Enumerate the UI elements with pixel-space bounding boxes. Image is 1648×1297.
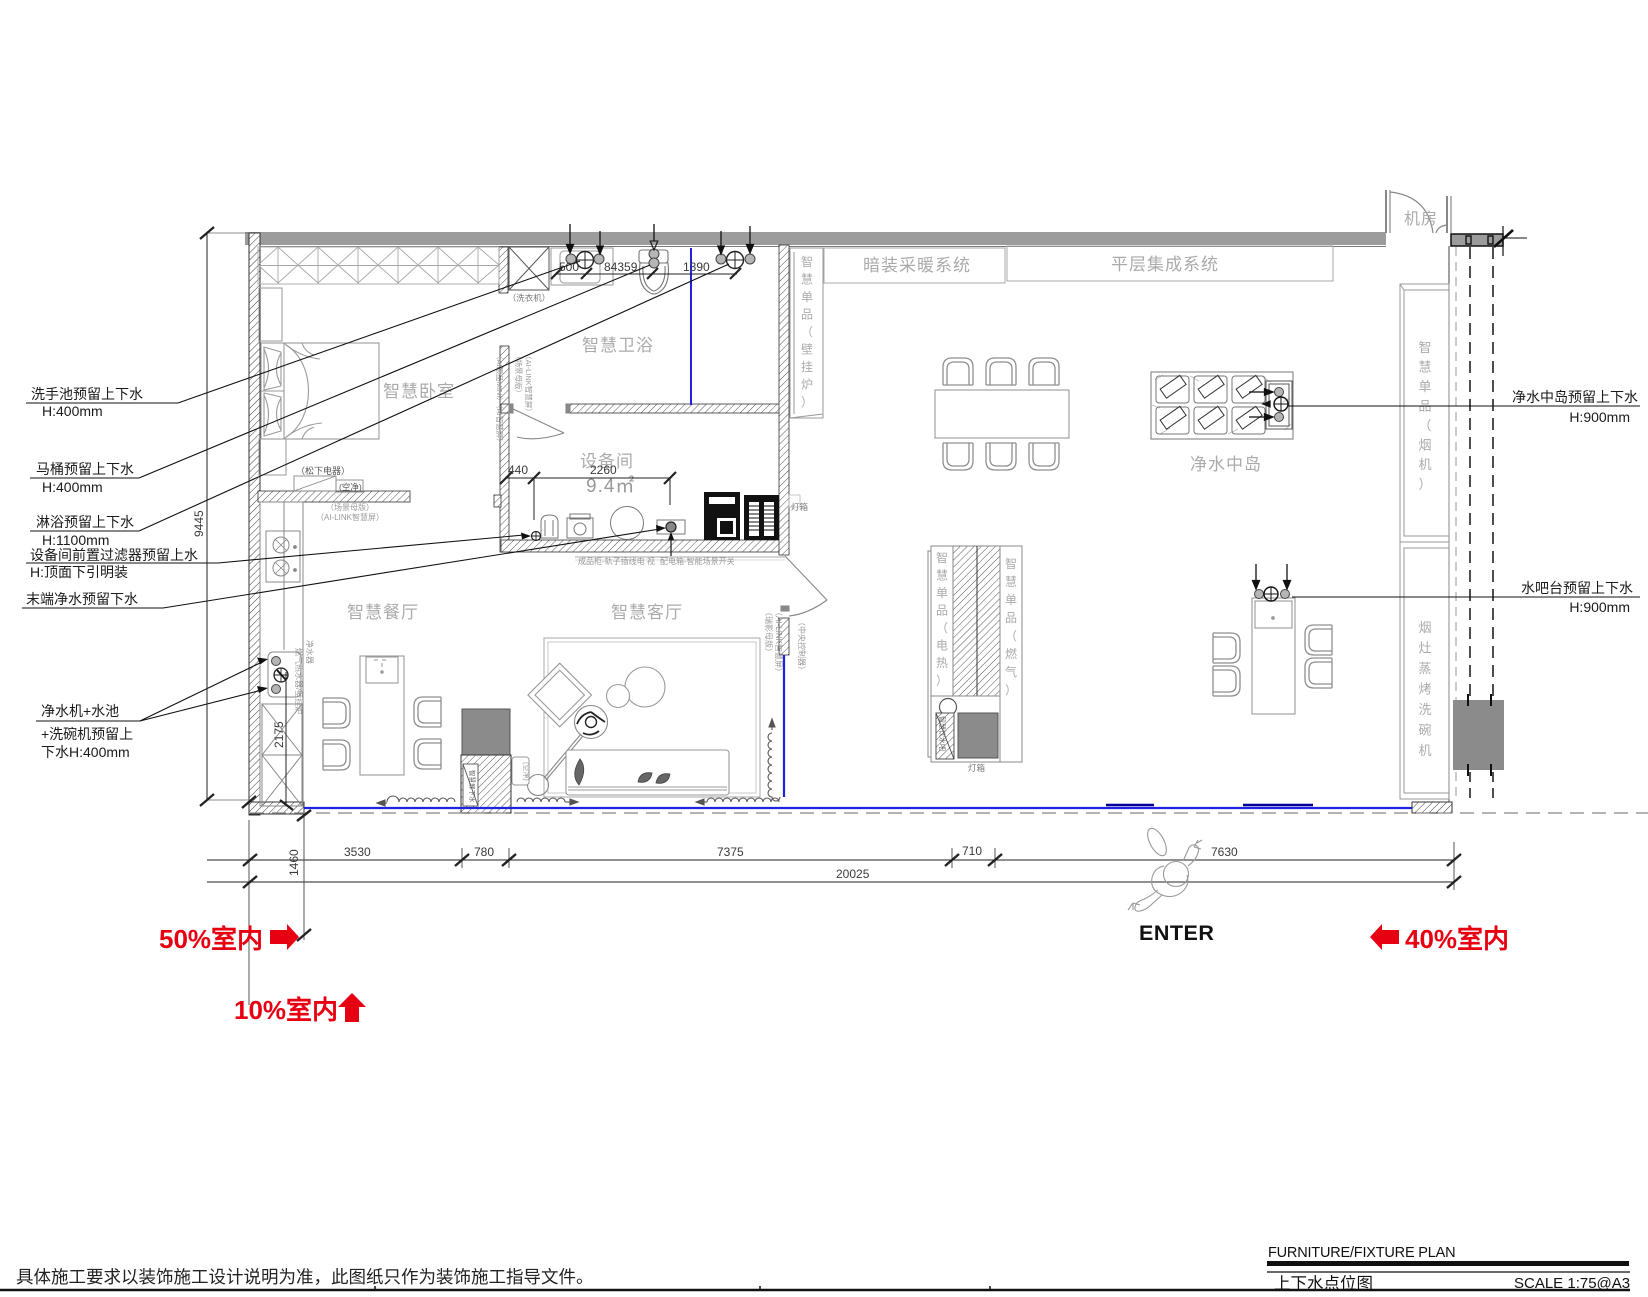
svg-text:烟灶蒸烤洗碗机: 烟灶蒸烤洗碗机 (1418, 620, 1431, 758)
svg-text:设备间前置过滤器预留上水: 设备间前置过滤器预留上水 (30, 547, 198, 563)
svg-text:40%室内: 40%室内 (1405, 924, 1509, 954)
svg-text:淋浴预留上下水: 淋浴预留上下水 (36, 514, 134, 530)
svg-text:（洗衣机）: （洗衣机） (508, 293, 551, 303)
svg-text:灯箱: 灯箱 (791, 502, 809, 512)
svg-text:智慧单品（壁挂炉）: 智慧单品（壁挂炉） (801, 254, 813, 409)
svg-text:20025: 20025 (836, 867, 870, 881)
svg-text:(空净): (空净) (339, 482, 362, 492)
svg-text:7630: 7630 (1211, 845, 1238, 859)
svg-text:智慧饮水吧: 智慧饮水吧 (938, 716, 947, 751)
svg-text:7375: 7375 (717, 845, 744, 859)
svg-text:H:900mm: H:900mm (1569, 599, 1630, 615)
svg-text:710: 710 (962, 844, 982, 858)
svg-text:智慧卧室: 智慧卧室 (383, 382, 455, 401)
svg-text:成品柜-轨子插线电 视: 成品柜-轨子插线电 视 (578, 556, 655, 566)
svg-text:（AI-LINK智慧屏）: （AI-LINK智慧屏） (316, 512, 384, 522)
svg-text:H:400mm: H:400mm (42, 479, 103, 495)
svg-text:1390: 1390 (683, 260, 710, 274)
svg-text:780: 780 (474, 845, 494, 859)
svg-text:净水中岛预留上下水: 净水中岛预留上下水 (1512, 389, 1638, 405)
svg-text:（场景母版）: （场景母版） (326, 502, 374, 512)
svg-text:(空净): (空净) (522, 762, 531, 781)
svg-text:净水器: 净水器 (305, 640, 315, 664)
svg-text:440: 440 (508, 463, 528, 477)
svg-text:洗手池预留上下水: 洗手池预留上下水 (31, 386, 143, 402)
svg-text:H:900mm: H:900mm (1569, 409, 1630, 425)
svg-text:灯箱: 灯箱 (968, 763, 986, 773)
svg-text:9.4㎡: 9.4㎡ (586, 474, 635, 497)
svg-text:+洗碗机预留上: +洗碗机预留上 (41, 726, 133, 742)
svg-text:燃气热水器/壁挂炉: 燃气热水器/壁挂炉 (294, 648, 304, 714)
svg-text:（松下电器）: （松下电器） (296, 465, 350, 476)
svg-text:配电箱-智能场景开关: 配电箱-智能场景开关 (660, 556, 735, 566)
svg-text:具体施工要求以装饰施工设计说明为准，此图纸只作为装饰施工指导: 具体施工要求以装饰施工设计说明为准，此图纸只作为装饰施工指导文件。 (16, 1267, 594, 1287)
svg-text:马桶预留上下水: 马桶预留上下水 (36, 461, 134, 477)
svg-text:ENTER: ENTER (1139, 921, 1214, 945)
svg-text:下水H:400mm: 下水H:400mm (41, 744, 130, 760)
svg-text:水吧台预留上下水: 水吧台预留上下水 (1521, 580, 1633, 596)
svg-text:智慧客厅: 智慧客厅 (611, 603, 683, 622)
svg-text:暗装采暖系统: 暗装采暖系统 (863, 256, 971, 275)
svg-text:平层集成系统: 平层集成系统 (1111, 255, 1219, 274)
svg-text:9445: 9445 (192, 510, 206, 537)
svg-text:1460: 1460 (287, 849, 301, 876)
svg-text:50%室内: 50%室内 (159, 924, 263, 954)
svg-text:（AI-LINK智慧屏）: （AI-LINK智慧屏） (774, 608, 784, 676)
svg-text:智慧餐厅: 智慧餐厅 (347, 603, 419, 622)
svg-text:智慧屏下水: 智慧屏下水 (468, 770, 477, 803)
svg-text:10%室内: 10%室内 (234, 995, 338, 1025)
svg-text:2175: 2175 (272, 721, 286, 748)
svg-text:H:1100mm: H:1100mm (42, 532, 109, 548)
svg-text:上下水点位图: 上下水点位图 (1274, 1274, 1373, 1292)
svg-text:3530: 3530 (344, 845, 371, 859)
svg-text:H:400mm: H:400mm (42, 403, 103, 419)
svg-text:2260: 2260 (590, 463, 617, 477)
svg-text:FURNITURE/FIXTURE PLAN: FURNITURE/FIXTURE PLAN (1268, 1245, 1455, 1261)
svg-text:H:顶面下引明装: H:顶面下引明装 (30, 564, 128, 580)
svg-text:（AI-LINK智慧屏）: （AI-LINK智慧屏） (524, 352, 534, 416)
svg-text:智慧卫浴: 智慧卫浴 (582, 336, 654, 355)
svg-text:净水中岛: 净水中岛 (1190, 455, 1262, 474)
svg-text:净水机+水池: 净水机+水池 (41, 703, 119, 719)
svg-text:SCALE 1:75@A3: SCALE 1:75@A3 (1514, 1275, 1630, 1292)
svg-text:机房: 机房 (1404, 210, 1438, 228)
svg-text:（瑞影母版）: （瑞影母版） (764, 608, 774, 656)
svg-text:（中央控制器）: （中央控制器） (797, 618, 807, 674)
svg-text:末端净水预留下水: 末端净水预留下水 (26, 591, 138, 607)
